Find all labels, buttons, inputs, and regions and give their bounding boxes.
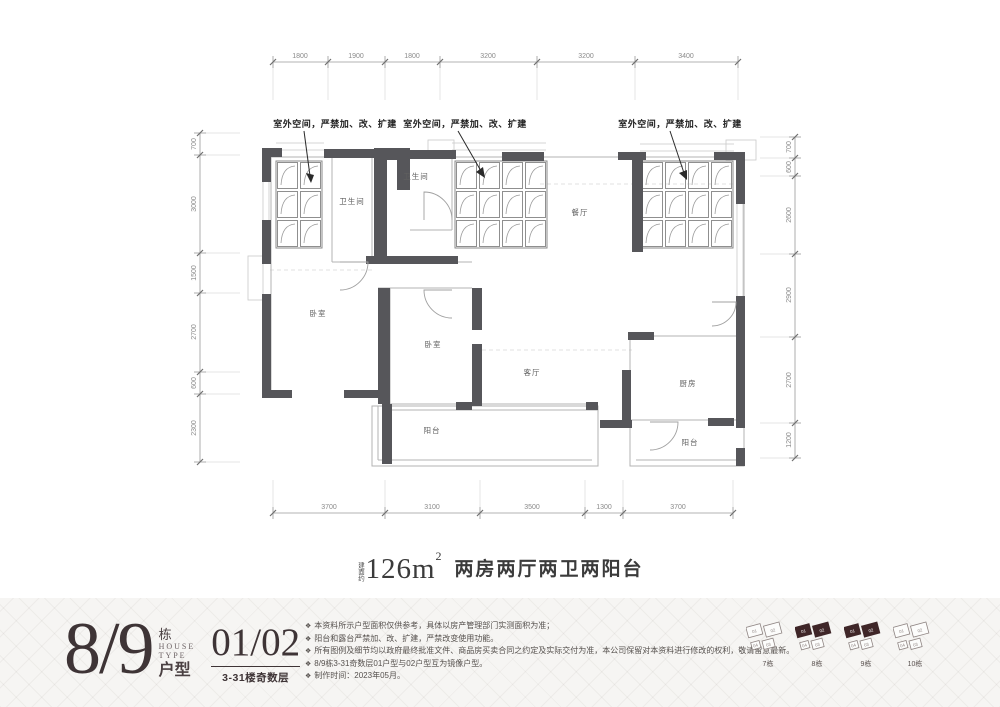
dim-label: 3700 (670, 504, 686, 511)
dimension-right: 700 600 2600 2900 2700 1200 (760, 134, 801, 461)
dim-label: 1800 (404, 53, 420, 60)
room-label-living: 客厅 (524, 367, 541, 377)
dim-label: 1900 (348, 53, 364, 60)
dim-label: 700 (191, 138, 198, 150)
key-plan-label: 8栋 (795, 659, 839, 669)
key-plan-7-icon: 01 02 03 04 (746, 618, 790, 658)
key-plan-label: 9栋 (844, 659, 888, 669)
dim-label: 3200 (578, 53, 594, 60)
unit-divider (211, 666, 300, 667)
key-plan-8-icon: 01 02 03 04 (795, 618, 839, 658)
key-plan-building-7: 01 02 03 04 7栋 (746, 618, 790, 669)
dim-label: 1500 (191, 265, 198, 281)
area-prefix-label: 建面约 (356, 561, 363, 583)
key-plan-building-8: 01 02 03 04 8栋 (795, 618, 839, 669)
dim-label: 1800 (292, 53, 308, 60)
room-label-balcony-1: 阳台 (424, 425, 441, 435)
callout-label: 室外空间，严禁加、改、扩建 (273, 118, 397, 129)
type-label: TYPE (159, 651, 196, 660)
diamond-bullet-icon: ❖ (305, 636, 311, 643)
dim-label: 700 (786, 141, 793, 153)
disclaimer-line: ❖阳台和露台严禁加、改、扩建，严禁改变使用功能。 (305, 633, 794, 646)
room-label-balcony-2: 阳台 (682, 437, 699, 447)
disclaimer-line: ❖制作时间：2023年05月。 (305, 670, 794, 683)
floor-plan-page: 1800 1900 1800 3200 3200 3400 3700 3100 … (0, 0, 1000, 707)
key-plan-building-9: 01 02 03 04 9栋 (844, 618, 888, 669)
disclaimer-line: ❖本资料所示户型面积仅供参考，具体以房产管理部门实测面积为准； (305, 620, 794, 633)
diamond-bullet-icon: ❖ (305, 673, 311, 680)
dimension-top: 1800 1900 1800 3200 3200 3400 (270, 53, 741, 100)
block-unit-label: 栋 (159, 628, 196, 642)
building-key-plans: 01 02 03 04 7栋 01 02 (746, 618, 937, 669)
floors-label: 3-31楼奇数层 (211, 670, 300, 685)
dim-label: 3500 (524, 504, 540, 511)
outdoor-area-middle (455, 161, 547, 248)
dimension-left: 700 3000 1500 2700 600 2300 (191, 130, 240, 465)
dim-label: 3000 (191, 196, 198, 212)
huxing-label: 户型 (159, 662, 196, 680)
dim-label: 2700 (191, 324, 198, 340)
dim-label: 3400 (678, 53, 694, 60)
diamond-bullet-icon: ❖ (305, 661, 311, 668)
footer-band: 8/9 栋 HOUSE TYPE 户型 01/02 3-31楼奇数层 ❖本资料所… (0, 598, 1000, 707)
dim-label: 1300 (596, 504, 612, 511)
room-label-bedroom-2: 卧室 (425, 339, 442, 349)
area-title: 建面约 126m2 两房两厅两卫两阳台 (0, 542, 1000, 588)
disclaimer-line: ❖所有图例及细节均以政府最终批准文件、商品房买卖合同之约定及实际交付为准，本公司… (305, 645, 794, 658)
room-label-bathroom-2: 卫生间 (403, 171, 429, 181)
dim-label: 600 (191, 377, 198, 389)
key-plan-9-icon: 01 02 03 04 (844, 618, 888, 658)
room-label-kitchen: 厨房 (680, 378, 697, 388)
diamond-bullet-icon: ❖ (305, 648, 311, 655)
area-value: 126m2 (365, 542, 442, 583)
key-plan-10-icon: 01 02 03 04 (893, 618, 937, 658)
dimension-bottom: 3700 3100 3500 1300 3700 (270, 480, 736, 519)
outdoor-area-left (276, 161, 322, 248)
block-number: 8/9 (64, 608, 153, 690)
unit-info: 01/02 3-31楼奇数层 (211, 608, 300, 685)
diamond-bullet-icon: ❖ (305, 623, 311, 630)
callout-label: 室外空间，严禁加、改、扩建 (618, 118, 742, 129)
floor-plan: 1800 1900 1800 3200 3200 3400 3700 3100 … (180, 40, 820, 540)
unit-numbers: 01/02 (211, 624, 300, 662)
dim-label: 3100 (424, 504, 440, 511)
room-label-dining: 餐厅 (572, 208, 589, 217)
key-plan-label: 7栋 (746, 659, 790, 669)
layout-description: 两房两厅两卫两阳台 (455, 557, 644, 583)
key-plan-building-10: 01 02 03 04 10栋 (893, 618, 937, 669)
block-number-suffix: 栋 HOUSE TYPE 户型 (159, 608, 196, 680)
dim-label: 3700 (321, 504, 337, 511)
house-label: HOUSE (159, 642, 196, 651)
square-superscript: 2 (436, 549, 443, 563)
callout-label: 室外空间，严禁加、改、扩建 (403, 118, 527, 129)
key-plan-label: 10栋 (893, 659, 937, 669)
dim-label: 600 (786, 161, 793, 173)
room-label-bathroom-1: 卫生间 (339, 196, 365, 206)
dim-label: 1200 (786, 432, 793, 448)
disclaimer-notes: ❖本资料所示户型面积仅供参考，具体以房产管理部门实测面积为准； ❖阳台和露台严禁… (305, 620, 794, 683)
disclaimer-line: ❖8/9栋3-31奇数层01户型与02户型互为镜像户型。 (305, 658, 794, 671)
dim-label: 2700 (786, 372, 793, 388)
dim-label: 3200 (480, 53, 496, 60)
dim-label: 2300 (191, 420, 198, 436)
dim-label: 2600 (786, 207, 793, 223)
dim-label: 2900 (786, 287, 793, 303)
room-label-bedroom-1: 卧室 (310, 308, 327, 318)
block-info: 8/9 栋 HOUSE TYPE 户型 01/02 3-31楼奇数层 (64, 608, 300, 690)
